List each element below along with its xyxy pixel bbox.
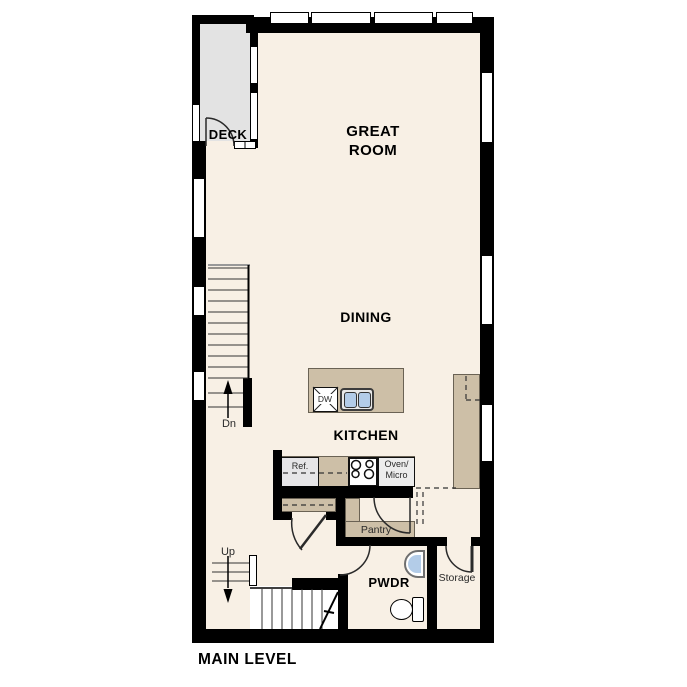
pwdr-label: PWDR: [368, 575, 409, 590]
wall-storage-jamb: [471, 537, 480, 546]
wall-stair-side: [243, 378, 252, 427]
kitchen-sink-basin-right: [358, 392, 371, 408]
oven-micro-line1: Oven/: [384, 459, 408, 469]
window-left-3: [193, 371, 205, 401]
refrigerator-label: Ref.: [292, 461, 309, 471]
great-room-label: GREAT ROOM: [338, 122, 408, 160]
window-top-1: [270, 12, 309, 24]
toilet-bowl: [390, 599, 413, 620]
wall-kitchen-back: [273, 486, 413, 498]
lower-stair-floor: [250, 586, 338, 629]
deck-floor: [200, 24, 250, 141]
right-wall-counter: [453, 374, 480, 489]
wall-deck-top: [192, 15, 254, 24]
pantry-label: Pantry: [361, 524, 391, 536]
wall-entry-stair: [292, 578, 348, 590]
kitchen-sink-basin-left: [344, 392, 357, 408]
wall-kitchen-left: [273, 450, 282, 520]
window-right-1: [481, 72, 493, 143]
plan-title: MAIN LEVEL: [198, 651, 297, 669]
storage-label: Storage: [439, 572, 476, 584]
wall-closet-bottom-left: [273, 512, 292, 520]
deck-label: DECK: [209, 127, 247, 142]
dishwasher-label: DW: [317, 394, 333, 404]
window-deck-inner-2: [250, 92, 258, 140]
oven-micro-line2: Micro: [386, 470, 408, 480]
cooktop: [348, 457, 378, 487]
window-top-2: [311, 12, 371, 24]
wall-storage-left: [427, 546, 437, 629]
wall-pantry-bottom: [336, 537, 447, 546]
floor-plan: DECK GREAT ROOM DINING KITCHEN PWDR Pant…: [0, 0, 687, 687]
stair-newel-post: [249, 555, 257, 586]
window-deck-inner-1: [250, 46, 258, 84]
window-left-1: [193, 178, 205, 238]
stair-down-label: Dn: [222, 418, 236, 430]
kitchen-label: KITCHEN: [333, 427, 398, 443]
dining-label: DINING: [340, 309, 391, 325]
window-top-4: [436, 12, 473, 24]
oven-micro-label: Oven/ Micro: [379, 459, 415, 481]
wall-pantry-left: [336, 498, 345, 540]
pwdr-sink-bowl: [408, 555, 421, 573]
window-left-2: [193, 286, 205, 316]
toilet-tank: [412, 597, 424, 622]
entry-closet-shelf: [281, 498, 336, 512]
window-deck-slider: [234, 141, 256, 149]
window-deck-left: [192, 104, 200, 142]
window-right-3: [481, 404, 493, 462]
window-right-2: [481, 255, 493, 325]
stair-up-label: Up: [221, 546, 235, 558]
window-top-3: [374, 12, 433, 24]
wall-bottom: [192, 629, 494, 643]
